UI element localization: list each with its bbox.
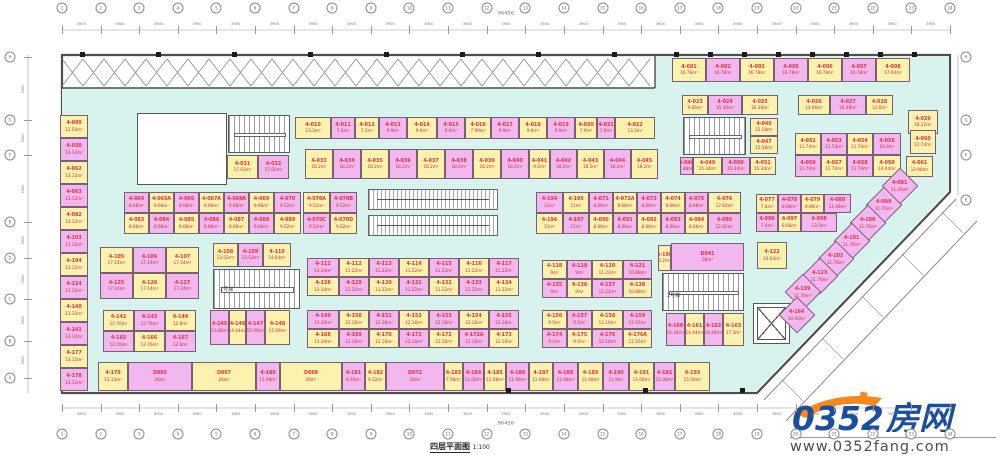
- escalator-down: [368, 215, 498, 236]
- dim-segment-top: 3900: [540, 22, 549, 26]
- unit-4-030: 4-03013.12m²: [60, 138, 88, 161]
- unit-area: 11m²: [544, 224, 555, 229]
- unit-area: 13.34m²: [314, 339, 332, 344]
- site-url: www.0352fang.com: [790, 437, 996, 455]
- unit-area: 9.32m²: [346, 377, 361, 382]
- unit-4-034: 4-03418.2m²: [333, 149, 361, 179]
- unit-4-133: 4-13311.22m²: [459, 277, 489, 296]
- dim-segment-bottom: 3900: [231, 412, 240, 416]
- unit-area: 15.96m²: [247, 328, 265, 333]
- unit-area: 26m²: [154, 377, 165, 382]
- dim-segment-bottom: 3900: [463, 412, 472, 416]
- unit-area: 12.82m²: [716, 203, 734, 208]
- unit-4-049: 4-04915.34m²: [693, 157, 722, 175]
- dim-tick: [62, 26, 63, 34]
- unit-4-198: 4-1983.2m²: [658, 245, 671, 271]
- unit-area: 13.3m²: [305, 128, 320, 133]
- axis-bubble-top: 10: [404, 3, 415, 14]
- unit-area: 13.12m²: [104, 377, 122, 382]
- unit-area: 13.3m²: [627, 128, 642, 133]
- unit-area: 16.78m²: [680, 70, 698, 75]
- unit-area: 9.9m²: [527, 128, 539, 133]
- dim-segment-left: 3900: [21, 274, 25, 283]
- unit-area: 12.76m²: [141, 321, 159, 326]
- dim-tick: [101, 404, 102, 412]
- axis-bubble-left: H: [5, 52, 16, 63]
- unit-4-188: 4-18811.08m²: [553, 362, 578, 391]
- dim-segment-top: 3900: [154, 22, 163, 26]
- dim-segment-left: 3900: [21, 235, 25, 244]
- unit-4-054: 4-05411.74m²: [847, 133, 873, 155]
- unit-area: 14.04m²: [268, 255, 286, 260]
- unit-4-156: 4-1569.5m²: [542, 310, 567, 329]
- unit-4-009: 4-00912.54m²: [60, 115, 88, 138]
- unit-4-163: 4-16317.3m²: [723, 313, 744, 346]
- column-marker: [80, 52, 85, 57]
- unit-4-044: 4-04418.2m²: [604, 149, 631, 179]
- unit-area: 8.66m²: [154, 224, 169, 229]
- dim-tick: [873, 404, 874, 412]
- unit-4-005: 4-00516.78m²: [774, 58, 808, 82]
- dim-segment-top: 3900: [463, 22, 472, 26]
- dim-segment-left: 3900: [21, 184, 25, 193]
- door-marker: [506, 388, 511, 393]
- unit-area: 12.16m²: [599, 339, 617, 344]
- unit-D041: D04138m²: [671, 243, 744, 271]
- dim-tick: [294, 26, 295, 34]
- unit-4-109: 4-10913.52m²: [238, 243, 263, 267]
- unit-4-134: 4-13411.22m²: [489, 277, 519, 296]
- unit-area: 11.08m²: [532, 377, 550, 382]
- unit-4-119: 4-1199m²: [567, 260, 592, 279]
- axis-bubble-bottom: 24: [945, 429, 956, 440]
- unit-4-053: 4-05311.74m²: [821, 133, 847, 155]
- dim-tick: [950, 404, 951, 412]
- unit-4-166: 4-16612.76m²: [134, 331, 165, 352]
- unit-4-129: 4-12911.22m²: [339, 277, 369, 296]
- unit-4-179: 4-17913.12m²: [98, 362, 128, 391]
- unit-4-048: 4-0484.88m²: [680, 157, 693, 175]
- axis-bubble-top: 21: [829, 3, 840, 14]
- unit-4-161: 4-16114.44m²: [685, 313, 704, 346]
- axis-bubble-bottom: 10: [404, 429, 415, 440]
- unit-area: 14.44m²: [878, 166, 896, 171]
- unit-area: 12.74m²: [914, 142, 932, 147]
- unit-4-158: 4-15812.16m²: [592, 310, 623, 329]
- unit-4-157: 4-1579.5m²: [567, 310, 592, 329]
- dim-tick: [564, 26, 565, 34]
- dim-tick: [873, 26, 874, 34]
- unit-4-074: 4-0748.66m²: [661, 192, 685, 213]
- column-marker: [742, 52, 747, 57]
- axis-bubble-top: 22: [867, 3, 878, 14]
- unit-area: 11.74m²: [799, 144, 817, 149]
- unit-4-187: 4-18711.08m²: [529, 362, 553, 391]
- dim-segment-top: 3900: [656, 22, 665, 26]
- unit-4-130: 4-13011.22m²: [369, 277, 399, 296]
- dim-tick: [24, 155, 32, 156]
- unit-area: 13.34m²: [314, 320, 332, 325]
- unit-area: 8.66m²: [204, 203, 219, 208]
- unit-4-017: 4-0179.9m²: [491, 117, 519, 139]
- dim-tick: [216, 404, 217, 412]
- unit-area: 16.78m²: [714, 70, 732, 75]
- unit-area: 12.16m²: [465, 339, 483, 344]
- unit-area: 8.66m²: [593, 224, 608, 229]
- unit-4-111: 4-11113.34m²: [307, 258, 339, 277]
- unit-D067: D06726m²: [192, 362, 256, 391]
- unit-area: 8.66m²: [617, 203, 632, 208]
- unit-4-153: 4-15312.16m²: [429, 310, 459, 329]
- dim-tick: [641, 26, 642, 34]
- unit-4-041: 4-0419.2m²: [529, 149, 550, 179]
- dim-segment-top: 3900: [501, 22, 510, 26]
- unit-area: 13.12m²: [65, 288, 83, 293]
- unit-4-019: 4-0199.9m²: [547, 117, 575, 139]
- dim-tick: [718, 404, 719, 412]
- unit-4-105: 4-10517.14m²: [100, 247, 133, 273]
- unit-area: 13.12m²: [65, 150, 83, 155]
- dim-segment-bottom: 3900: [540, 412, 549, 416]
- column-marker: [460, 52, 465, 57]
- unit-4-176A: 4-176A12.16m²: [623, 329, 652, 348]
- unit-4-152: 4-15212.16m²: [399, 310, 429, 329]
- unit-area: 11.76m²: [811, 276, 829, 281]
- unit-area: 15.36m²: [716, 105, 734, 110]
- unit-area: 9.5m²: [548, 339, 560, 344]
- unit-area: 8.66m²: [204, 224, 219, 229]
- axis-bubble-left: G: [5, 115, 16, 126]
- unit-4-052: 4-05211.74m²: [795, 133, 821, 155]
- unit-area: 11.22m²: [495, 268, 513, 273]
- unit-area: 11.22m²: [375, 287, 393, 292]
- unit-4-137: 4-13711.22m²: [592, 279, 623, 298]
- unit-area: 11.08m²: [633, 377, 651, 382]
- dim-segment-top: 3900: [849, 22, 858, 26]
- unit-area: 16.38m²: [839, 105, 857, 110]
- unit-area: 15.34m²: [727, 166, 745, 171]
- dim-total-bottom: 96456: [498, 422, 514, 427]
- unit-area: 11.74m²: [851, 144, 869, 149]
- axis-bubble-top: 13: [520, 3, 531, 14]
- axis-bubble-left: D: [5, 253, 16, 264]
- unit-4-103: 4-10313.12m²: [60, 230, 88, 253]
- logo-roof-icon: 0352房网: [790, 388, 996, 432]
- unit-4-064: 4-0648.66m²: [124, 192, 149, 213]
- unit-area: 14.44m²: [229, 328, 246, 333]
- unit-area: 12.76m²: [141, 342, 159, 347]
- unit-4-082: 4-08213.12m²: [60, 207, 88, 230]
- unit-area: 16.78m²: [748, 70, 766, 75]
- column-marker: [912, 52, 917, 57]
- unit-area: 7.3m²: [337, 128, 349, 133]
- unit-4-007: 4-00716.78m²: [842, 58, 876, 82]
- unit-D068: D06826m²: [280, 362, 342, 391]
- unit-area: 8.66m²: [129, 203, 144, 208]
- unit-area: 7.99m²: [470, 128, 485, 133]
- unit-id: 4-139: [795, 287, 810, 293]
- dim-segment-top: 3900: [617, 22, 626, 26]
- unit-area: 26m²: [218, 377, 229, 382]
- unit-4-154: 4-15412.16m²: [459, 310, 489, 329]
- axis-bubble-bottom: 19: [751, 429, 762, 440]
- dim-segment-top: 3900: [308, 22, 317, 26]
- unit-area: 17.02m²: [265, 167, 283, 172]
- unit-area: 11.22m²: [405, 287, 423, 292]
- dim-tick: [718, 26, 719, 34]
- unit-4-143: 4-14312.76m²: [134, 310, 165, 331]
- unit-4-108: 4-10813.52m²: [213, 243, 238, 267]
- unit-area: 8.66m²: [593, 203, 608, 208]
- unit-area: 18.2m²: [479, 164, 494, 169]
- unit-4-175: 4-1759.5m²: [567, 329, 592, 348]
- dim-tick: [525, 404, 526, 412]
- unit-4-070C: 4-070C9.52m²: [303, 213, 330, 234]
- dim-tick: [178, 404, 179, 412]
- unit-4-184: 4-18411.08m²: [463, 362, 484, 391]
- dim-tick: [448, 404, 449, 412]
- unit-4-095: 4-09512.82m²: [708, 213, 741, 234]
- unit-area: 15.58m²: [755, 127, 773, 132]
- axis-bubble-left: E: [5, 217, 16, 228]
- axis-bubble-left: A: [5, 373, 16, 384]
- unit-D072: D07226m²: [386, 362, 444, 391]
- unit-4-132: 4-13211.22m²: [429, 277, 459, 296]
- axis-bubble-top: 7: [288, 3, 299, 14]
- column-marker: [708, 52, 713, 57]
- dim-segment-bottom: 3900: [77, 412, 86, 416]
- unit-4-107: 4-10717.24m²: [166, 247, 199, 273]
- unit-4-121: 4-12110.88m²: [623, 260, 652, 279]
- unit-area: 16.9m²: [879, 144, 894, 149]
- axis-bubble-bottom: 1: [57, 429, 68, 440]
- axis-bubble-top: 16: [636, 3, 647, 14]
- unit-4-185: 4-18511.08m²: [484, 362, 506, 391]
- unit-id: 4-164: [789, 310, 804, 316]
- unit-area: 10.56m²: [788, 315, 806, 320]
- unit-area: 14.44m²: [667, 330, 685, 335]
- unit-4-066: 4-0668.66m²: [174, 192, 199, 213]
- unit-4-021: 4-0217.9m²: [597, 117, 615, 139]
- stair-label: 1号梯: [220, 286, 233, 293]
- unit-4-018: 4-0189.9m²: [519, 117, 547, 139]
- unit-4-055: 4-05516.9m²: [873, 133, 901, 155]
- unit-4-037: 4-03718.2m²: [417, 149, 445, 179]
- unit-area: 13.12m²: [65, 334, 83, 339]
- unit-4-042: 4-04218.2m²: [550, 149, 577, 179]
- unit-4-088: 4-0888.66m²: [249, 213, 274, 234]
- unit-4-075: 4-0758.66m²: [685, 192, 708, 213]
- unit-4-092: 4-0928.66m²: [637, 213, 661, 234]
- unit-4-069: 4-0698.66m²: [249, 192, 274, 213]
- unit-area: 13.96m²: [911, 167, 929, 172]
- axis-bubble-top: 20: [790, 3, 801, 14]
- plan-title: 四层平面图 1:100: [430, 441, 490, 452]
- unit-4-070A: 4-070A9.52m²: [303, 192, 330, 213]
- unit-4-008: 4-00817.04m²: [876, 58, 910, 82]
- unit-area: 12.6m²: [872, 105, 887, 110]
- dim-tick: [603, 26, 604, 34]
- unit-area: 17.14m²: [141, 286, 159, 291]
- dim-tick: [178, 26, 179, 34]
- unit-4-024: 4-02415.36m²: [708, 95, 742, 115]
- unit-area: 18.2m²: [610, 164, 625, 169]
- unit-area: 11m²: [570, 203, 581, 208]
- unit-area: 9.66m²: [687, 105, 702, 110]
- unit-area: 8.66m²: [254, 224, 269, 229]
- unit-4-116: 4-11611.22m²: [459, 258, 489, 277]
- unit-area: 8.66m²: [805, 204, 820, 209]
- unit-4-148: 4-14817.49m²: [265, 310, 290, 345]
- unit-area: 11.74m²: [825, 144, 843, 149]
- axis-bubble-bottom: 9: [365, 429, 376, 440]
- axis-bubble-bottom: 12: [481, 429, 492, 440]
- unit-id: 4-123: [812, 271, 827, 277]
- unit-4-078: 4-0788.66m²: [778, 194, 801, 213]
- unit-area: 9.5m²: [548, 320, 560, 325]
- unit-4-060: 4-06012.74m²: [910, 130, 936, 154]
- unit-area: 17.24m²: [174, 286, 192, 291]
- unit-area: 12.8m²: [173, 321, 188, 326]
- axis-bubble-top: 9: [365, 3, 376, 14]
- unit-area: 14.44m²: [686, 330, 704, 335]
- dim-segment-bottom: 3900: [617, 412, 626, 416]
- unit-area: 7.4m²: [761, 223, 773, 228]
- unit-4-063: 4-06313.12m²: [60, 184, 88, 207]
- unit-area: 11.22m²: [435, 268, 453, 273]
- axis-bubble-top: 24: [945, 3, 956, 14]
- axis-bubble-top: 1: [57, 3, 68, 14]
- dim-segment-left: 3900: [21, 355, 25, 364]
- unit-4-168: 4-16813.34m²: [307, 329, 339, 348]
- unit-4-181: 4-1819.32m²: [342, 362, 365, 391]
- dim-tick: [216, 26, 217, 34]
- unit-4-056: 4-05611.74m²: [795, 155, 821, 177]
- dim-tick: [24, 378, 32, 379]
- axis-bubble-top: 11: [443, 3, 454, 14]
- unit-4-026: 4-02613.66m²: [798, 95, 830, 115]
- unit-4-035: 4-03518.2m²: [361, 149, 389, 179]
- unit-4-189: 4-18911.08m²: [578, 362, 603, 391]
- dim-tick: [101, 26, 102, 34]
- axis-bubble-top: 17: [674, 3, 685, 14]
- unit-area: 12.54m²: [65, 127, 83, 132]
- unit-area: 13.52m²: [217, 255, 235, 260]
- unit-area: 12.16m²: [629, 339, 647, 344]
- dim-tick: [24, 341, 32, 342]
- axis-bubble-right: G: [961, 115, 972, 126]
- unit-4-118: 4-1189m²: [542, 260, 567, 279]
- dim-tick: [564, 404, 565, 412]
- unit-4-027: 4-02716.38m²: [830, 95, 866, 115]
- unit-area: 11.9m²: [608, 377, 623, 382]
- dim-total-top: 96456: [498, 12, 514, 17]
- unit-area: 13.12m²: [65, 265, 83, 270]
- unit-area: 11.22m²: [465, 287, 483, 292]
- unit-area: 12.16m²: [405, 320, 423, 325]
- unit-area: 12.16m²: [599, 320, 617, 325]
- unit-4-083: 4-0838.66m²: [124, 213, 149, 234]
- dim-segment-bottom: 3900: [115, 412, 124, 416]
- unit-4-178: 4-17813.12m²: [60, 368, 88, 391]
- unit-4-032: 4-03217.02m²: [258, 155, 289, 179]
- unit-4-183: 4-1837.56m²: [444, 362, 463, 391]
- unit-4-090: 4-0908.66m²: [589, 213, 613, 234]
- unit-area: 12.16m²: [435, 320, 453, 325]
- unit-4-169: 4-16912.16m²: [339, 329, 369, 348]
- column-marker: [536, 52, 541, 57]
- axis-bubble-bottom: 11: [443, 429, 454, 440]
- axis-bubble-bottom: 21: [829, 429, 840, 440]
- unit-4-193: 4-19315.56m²: [675, 362, 710, 391]
- unit-4-033: 4-03318.2m²: [305, 149, 333, 179]
- unit-area: 12.16m²: [495, 339, 513, 344]
- axis-bubble-top: 4: [172, 3, 183, 14]
- unit-4-151: 4-15112.16m²: [369, 310, 399, 329]
- unit-4-046: 4-04615.58m²: [750, 118, 778, 136]
- dim-segment-bottom: 3900: [308, 412, 317, 416]
- unit-area: 18.2m²: [423, 164, 438, 169]
- unit-area: 11m²: [570, 224, 581, 229]
- stairwell-top-right: [683, 117, 746, 155]
- unit-area: 13.34m²: [314, 268, 332, 273]
- unit-area: 9.9m²: [387, 128, 399, 133]
- dim-tick: [525, 26, 526, 34]
- axis-bubble-bottom: 14: [558, 429, 569, 440]
- unit-area: 12.16m²: [465, 320, 483, 325]
- unit-4-028: 4-02812.6m²: [866, 95, 893, 115]
- unit-area: 8.66m²: [782, 223, 797, 228]
- unit-area: 7.9m²: [580, 128, 592, 133]
- axis-bubble-top: 18: [713, 3, 724, 14]
- stairwell-top-left: [228, 115, 290, 153]
- unit-4-145: 4-14513.88m²: [210, 310, 229, 345]
- unit-4-192: 4-19211.08m²: [654, 362, 675, 391]
- unit-area: 18.2m²: [507, 164, 522, 169]
- unit-area: 11.08m²: [465, 377, 483, 382]
- unit-4-076: 4-07612.82m²: [708, 192, 741, 213]
- dim-segment-top: 3900: [810, 22, 819, 26]
- unit-area: 15.56m²: [684, 377, 702, 382]
- unit-area: 11.76m²: [827, 259, 845, 264]
- unit-area: 8.66m²: [665, 203, 680, 208]
- unit-area: 8.66m²: [179, 224, 194, 229]
- axis-bubble-right: E: [961, 195, 972, 206]
- unit-area: 9m²: [575, 289, 583, 294]
- unit-4-002: 4-00216.78m²: [706, 58, 740, 82]
- unit-area: 7.3m²: [361, 128, 373, 133]
- axis-bubble-bottom: 5: [211, 429, 222, 440]
- unit-4-127: 4-12717.24m²: [166, 273, 199, 299]
- unit-4-086: 4-0868.66m²: [199, 213, 224, 234]
- unit-area: 9.52m²: [280, 203, 295, 208]
- unit-4-113: 4-11311.22m²: [369, 258, 399, 277]
- unit-area: 13.66m²: [805, 105, 823, 110]
- dim-segment-bottom: 3900: [424, 412, 433, 416]
- dim-segment-bottom: 3900: [926, 412, 935, 416]
- dim-tick: [24, 299, 32, 300]
- unit-4-071: 4-0718.66m²: [589, 192, 613, 213]
- dim-tick: [680, 404, 681, 412]
- unit-4-172: 4-17212.16m²: [429, 329, 459, 348]
- axis-bubble-bottom: 15: [597, 429, 608, 440]
- unit-area: 18.2m²: [583, 164, 598, 169]
- unit-area: 9.2m²: [533, 164, 545, 169]
- unit-4-079: 4-0798.66m²: [801, 194, 824, 213]
- column-marker: [878, 52, 883, 57]
- dim-tick: [487, 404, 488, 412]
- axis-bubble-top: 23: [906, 3, 917, 14]
